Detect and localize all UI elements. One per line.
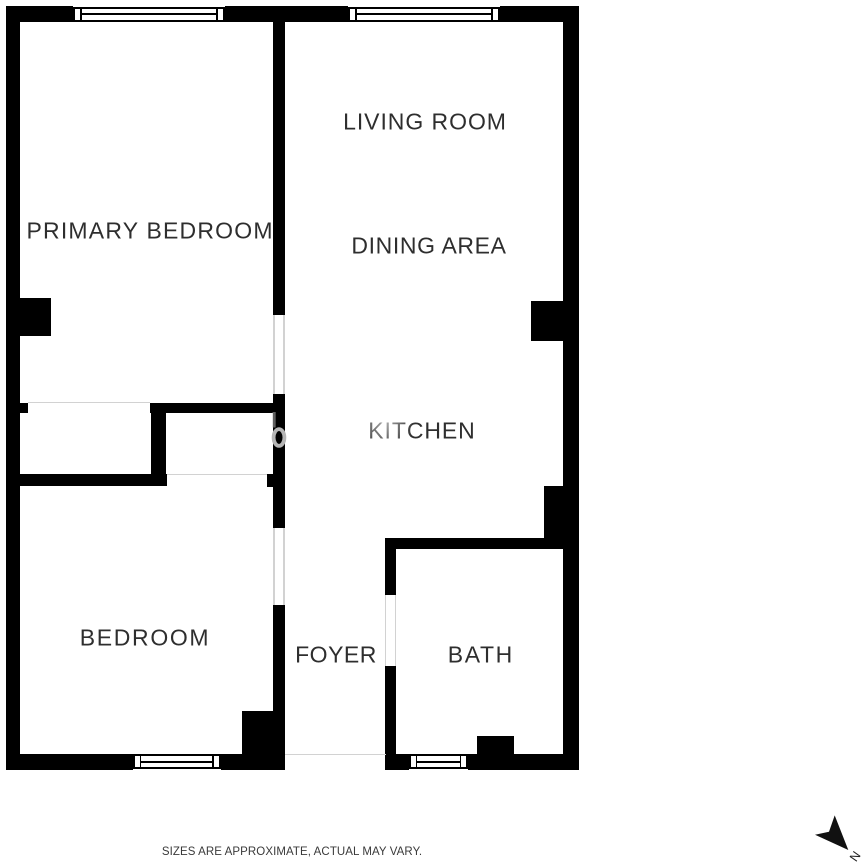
svg-text:N: N	[847, 849, 863, 864]
